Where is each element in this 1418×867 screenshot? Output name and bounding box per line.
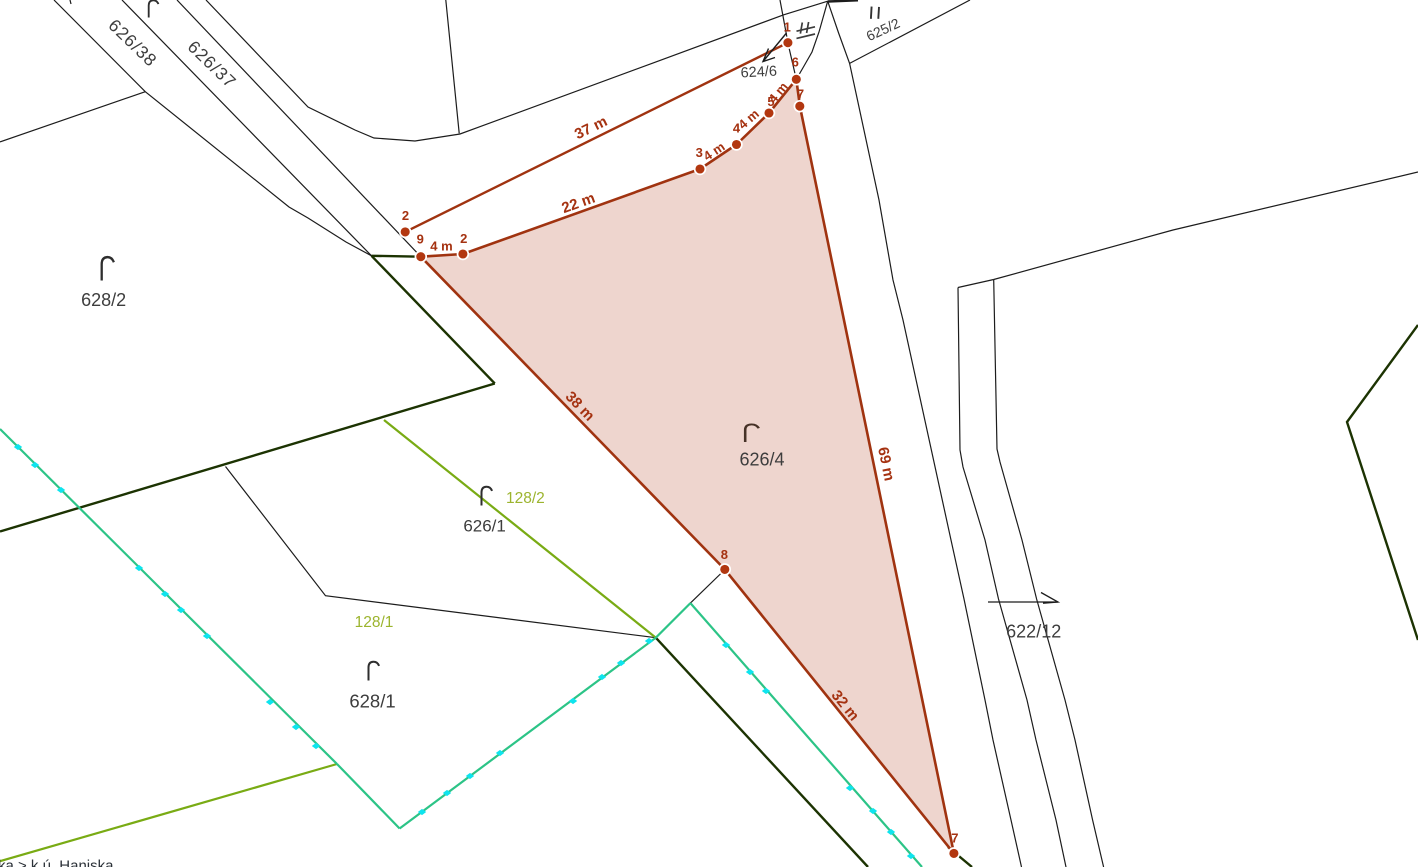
svg-text:9: 9 xyxy=(417,232,424,247)
svg-text:626/1: 626/1 xyxy=(463,517,506,536)
svg-text:628/2: 628/2 xyxy=(81,290,126,310)
svg-text:6: 6 xyxy=(792,55,799,70)
svg-text:1: 1 xyxy=(784,20,791,35)
svg-text:128/2: 128/2 xyxy=(506,490,545,507)
svg-text:628/1: 628/1 xyxy=(349,690,395,711)
svg-text:7: 7 xyxy=(951,831,958,846)
svg-text:622/12: 622/12 xyxy=(1006,622,1061,642)
svg-text:4 m: 4 m xyxy=(430,238,452,253)
svg-text:ka > k.ú. Haniska: ka > k.ú. Haniska xyxy=(0,857,114,867)
svg-text:8: 8 xyxy=(721,547,728,562)
svg-text:2: 2 xyxy=(460,231,467,246)
svg-text:7: 7 xyxy=(797,86,804,101)
svg-text:624/6: 624/6 xyxy=(740,64,777,82)
svg-text:128/1: 128/1 xyxy=(355,614,394,631)
svg-text:2: 2 xyxy=(402,208,409,223)
svg-text:626/4: 626/4 xyxy=(739,450,784,470)
